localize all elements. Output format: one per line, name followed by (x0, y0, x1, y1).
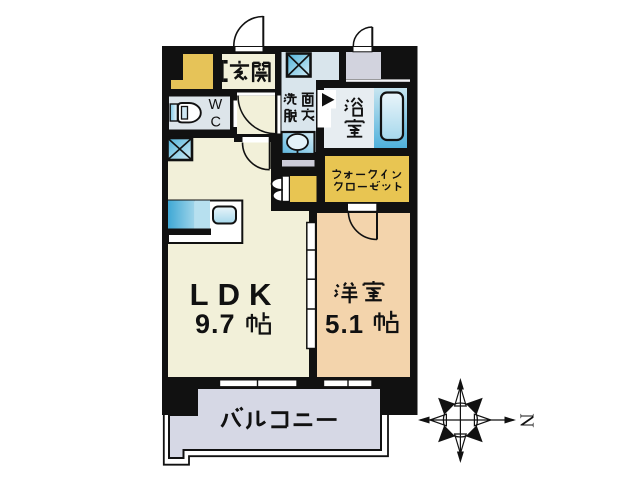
svg-text:N: N (516, 413, 538, 427)
svg-text:LDK: LDK (190, 277, 281, 312)
svg-text:9.7: 9.7 (195, 309, 236, 339)
svg-text:W: W (209, 97, 223, 113)
svg-text:C: C (211, 115, 221, 131)
svg-text:5.1: 5.1 (325, 309, 364, 339)
